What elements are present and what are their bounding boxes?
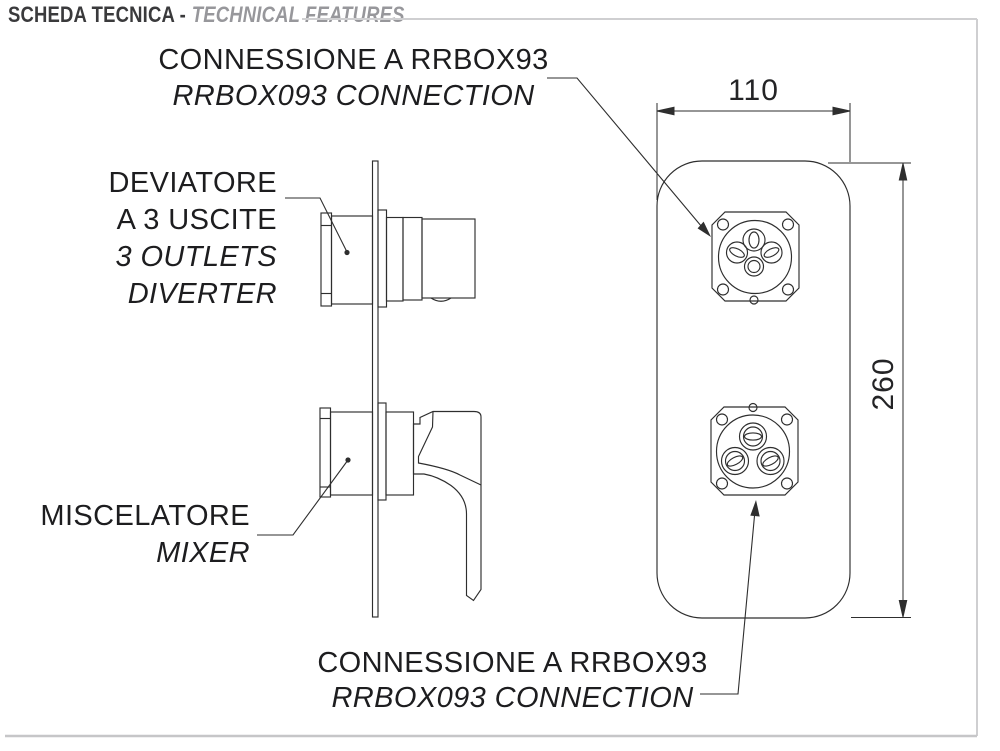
screw-hole <box>782 414 793 425</box>
label-mixer: MISCELATORE MIXER <box>40 498 250 572</box>
leader-diverter-dot <box>344 250 349 255</box>
diverter-knob <box>422 219 475 298</box>
arrowhead-down <box>899 601 906 618</box>
arrowhead-left <box>657 107 674 115</box>
screw-hole <box>783 284 794 295</box>
diverter-ring-2 <box>403 218 422 301</box>
diverter-ring-1 <box>387 218 404 302</box>
leader-mixer-dot <box>345 457 350 462</box>
side-view-diverter <box>321 210 475 307</box>
label-diverter-line1: DEVIATORE <box>40 165 277 202</box>
arrowhead-right <box>833 107 850 115</box>
label-bottom-connection-it: CONNESSIONE A RRBOX93 <box>300 646 725 681</box>
leader-bottom-arrowhead <box>750 500 759 517</box>
alignment-notch <box>750 296 758 304</box>
outlet-port-bottom <box>745 257 764 276</box>
label-top-connection-en: RRBOX093 CONNECTION <box>140 78 567 114</box>
front-view-diverter-trim <box>712 212 799 304</box>
screw-hole <box>718 219 729 230</box>
technical-sheet-page: SCHEDA TECNICA -TECHNICAL FEATURES <box>0 0 1000 751</box>
label-top-connection-it: CONNESSIONE A RRBOX93 <box>140 42 567 78</box>
port-top-slot <box>745 433 762 440</box>
mixer-escutcheon <box>711 407 798 495</box>
mixer-knob-face <box>717 415 790 488</box>
label-mixer-it: MISCELATORE <box>40 498 250 535</box>
diverter-body <box>332 216 373 304</box>
diverter-end-cap <box>321 213 332 306</box>
screw-hole <box>782 478 793 489</box>
outlet-slot-right <box>763 246 781 260</box>
side-view-wall-plate <box>373 161 379 617</box>
screw-hole <box>783 219 794 230</box>
label-bottom-connection-en: RRBOX093 CONNECTION <box>300 681 725 716</box>
arrowhead-up <box>899 164 906 181</box>
dimension-value-110: 110 <box>657 74 850 108</box>
leader-mixer <box>257 460 348 535</box>
mixer-handle-detail <box>419 412 482 486</box>
mixer-cartridge <box>386 412 414 495</box>
label-diverter: DEVIATORE A 3 USCITE 3 OUTLETS DIVERTER <box>40 165 277 313</box>
label-top-connection: CONNESSIONE A RRBOX93 RRBOX093 CONNECTIO… <box>140 42 567 114</box>
screw-hole <box>717 414 728 425</box>
mixer-body <box>331 412 373 495</box>
diverter-escutcheon <box>712 212 799 301</box>
port-bottom-right-slot <box>761 454 779 468</box>
outlet-slot-left <box>728 246 746 260</box>
leader-diverter <box>285 198 347 252</box>
side-view-mixer <box>320 403 481 601</box>
screw-hole <box>717 478 728 489</box>
label-mixer-en: MIXER <box>40 535 250 572</box>
port-bottom-left-slot <box>726 454 744 468</box>
dimension-110 <box>657 103 850 200</box>
outlet-port-bottom-inner <box>748 261 760 273</box>
label-diverter-line4: DIVERTER <box>40 276 277 313</box>
outlet-port-left <box>727 242 748 263</box>
diverter-flange <box>378 210 387 307</box>
dimension-value-260: 260 <box>869 334 899 434</box>
port-top-inner <box>744 427 763 446</box>
frame-rules <box>5 19 977 736</box>
label-diverter-line2: A 3 USCITE <box>40 202 277 239</box>
label-bottom-connection: CONNESSIONE A RRBOX93 RRBOX093 CONNECTIO… <box>300 646 725 716</box>
mixer-flange <box>378 403 386 500</box>
outlet-port-right <box>761 242 782 263</box>
mixer-handle <box>414 412 482 601</box>
screw-hole <box>718 284 729 295</box>
outlet-slot-top <box>749 232 759 248</box>
front-view-mixer-trim <box>711 404 798 496</box>
label-diverter-line3: 3 OUTLETS <box>40 239 277 276</box>
leader-lines <box>257 78 760 694</box>
mixer-end-cap <box>320 408 331 497</box>
